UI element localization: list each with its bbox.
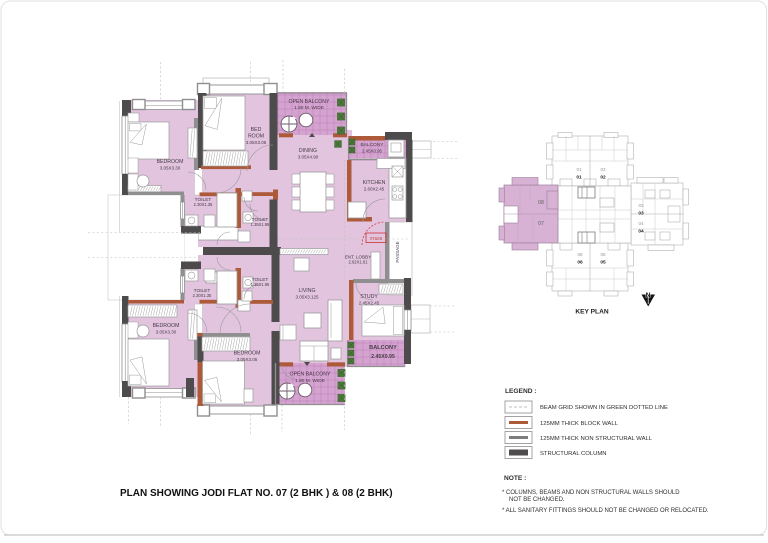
- svg-text:3.05X3.30: 3.05X3.30: [156, 330, 177, 335]
- svg-text:07: 07: [538, 221, 544, 227]
- svg-text:BEDROOM: BEDROOM: [157, 159, 184, 165]
- svg-text:BED: BED: [251, 127, 262, 133]
- svg-text:125MM THICK NON STRUCTURAL WAL: 125MM THICK NON STRUCTURAL WALL: [540, 436, 653, 442]
- svg-text:05: 05: [600, 260, 606, 266]
- svg-text:04: 04: [638, 229, 644, 235]
- svg-text:NOTE :: NOTE :: [504, 475, 526, 482]
- svg-text:2.30X1.35: 2.30X1.35: [193, 293, 212, 298]
- svg-text:BEDROOM: BEDROOM: [153, 323, 180, 329]
- svg-text:08: 08: [538, 200, 544, 206]
- svg-text:02: 02: [600, 175, 606, 181]
- svg-text:NOT BE CHANGED.: NOT BE CHANGED.: [509, 497, 565, 503]
- svg-text:1.35X1.95: 1.35X1.95: [251, 222, 270, 227]
- svg-text:2.30X1.35: 2.30X1.35: [194, 202, 213, 207]
- svg-text:3.05X3.30: 3.05X3.30: [160, 166, 181, 171]
- svg-text:01: 01: [576, 167, 582, 172]
- svg-text:01: 01: [576, 175, 582, 181]
- svg-text:03: 03: [638, 211, 644, 217]
- svg-text:STUDY: STUDY: [360, 294, 378, 300]
- svg-text:PLAN SHOWING JODI FLAT NO. 07: PLAN SHOWING JODI FLAT NO. 07 (2 BHK ) &…: [120, 488, 393, 499]
- svg-text:1.80 M. WIDE: 1.80 M. WIDE: [295, 378, 325, 384]
- svg-text:STRUCTURAL COLUMN: STRUCTURAL COLUMN: [540, 451, 607, 457]
- svg-text:PASSAGE: PASSAGE: [395, 241, 400, 262]
- svg-text:BEDROOM: BEDROOM: [234, 351, 261, 357]
- svg-text:2.45X0.95: 2.45X0.95: [362, 149, 383, 154]
- svg-text:LEGEND :: LEGEND :: [505, 388, 537, 395]
- svg-text:1.35X1.95: 1.35X1.95: [251, 282, 270, 287]
- svg-text:BALCONY: BALCONY: [369, 345, 397, 351]
- svg-text:2.45X2.45: 2.45X2.45: [359, 301, 380, 306]
- svg-text:2.60X2.45: 2.60X2.45: [364, 187, 385, 192]
- svg-text:OPEN BALCONY: OPEN BALCONY: [289, 99, 330, 105]
- svg-text:05: 05: [600, 252, 606, 257]
- svg-text:LIVING: LIVING: [298, 288, 315, 294]
- svg-text:OPEN BALCONY: OPEN BALCONY: [290, 372, 331, 378]
- svg-text:02: 02: [600, 167, 606, 172]
- svg-text:1.80 M. WIDE: 1.80 M. WIDE: [294, 105, 324, 111]
- svg-text:3.05X4.90: 3.05X4.90: [298, 155, 319, 160]
- svg-text:ENT. LOBBY: ENT. LOBBY: [345, 255, 372, 260]
- svg-text:3.05X3.05: 3.05X3.05: [237, 357, 258, 362]
- svg-text:ROOM: ROOM: [248, 134, 264, 140]
- svg-text:03: 03: [638, 203, 644, 208]
- svg-text:* ALL SANITARY FITTINGS SHOULD: * ALL SANITARY FITTINGS SHOULD NOT BE CH…: [502, 508, 709, 514]
- svg-text:3.05X3.05: 3.05X3.05: [246, 140, 267, 145]
- svg-text:06: 06: [577, 252, 583, 257]
- svg-text:KEY PLAN: KEY PLAN: [575, 309, 608, 316]
- svg-text:125MM THICK BLOCK WALL: 125MM THICK BLOCK WALL: [540, 421, 619, 427]
- svg-text:07&08: 07&08: [370, 236, 383, 241]
- svg-text:DINING: DINING: [299, 148, 317, 154]
- svg-text:3.05X3.125: 3.05X3.125: [295, 295, 319, 300]
- svg-text:06: 06: [577, 260, 583, 266]
- svg-text:2.45X0.95: 2.45X0.95: [371, 354, 395, 360]
- svg-text:2.62X1.61: 2.62X1.61: [348, 260, 368, 265]
- svg-text:N: N: [646, 292, 651, 299]
- svg-text:* COLUMNS, BEAMS AND NON STRUC: * COLUMNS, BEAMS AND NON STRUCTURAL WALL…: [502, 490, 680, 496]
- svg-text:04: 04: [638, 221, 644, 226]
- svg-text:KITCHEN: KITCHEN: [363, 180, 386, 186]
- svg-text:BEAM GRID SHOWN IN GREEN DOTTE: BEAM GRID SHOWN IN GREEN DOTTED LINE: [540, 405, 668, 411]
- svg-text:BALCONY: BALCONY: [361, 142, 385, 148]
